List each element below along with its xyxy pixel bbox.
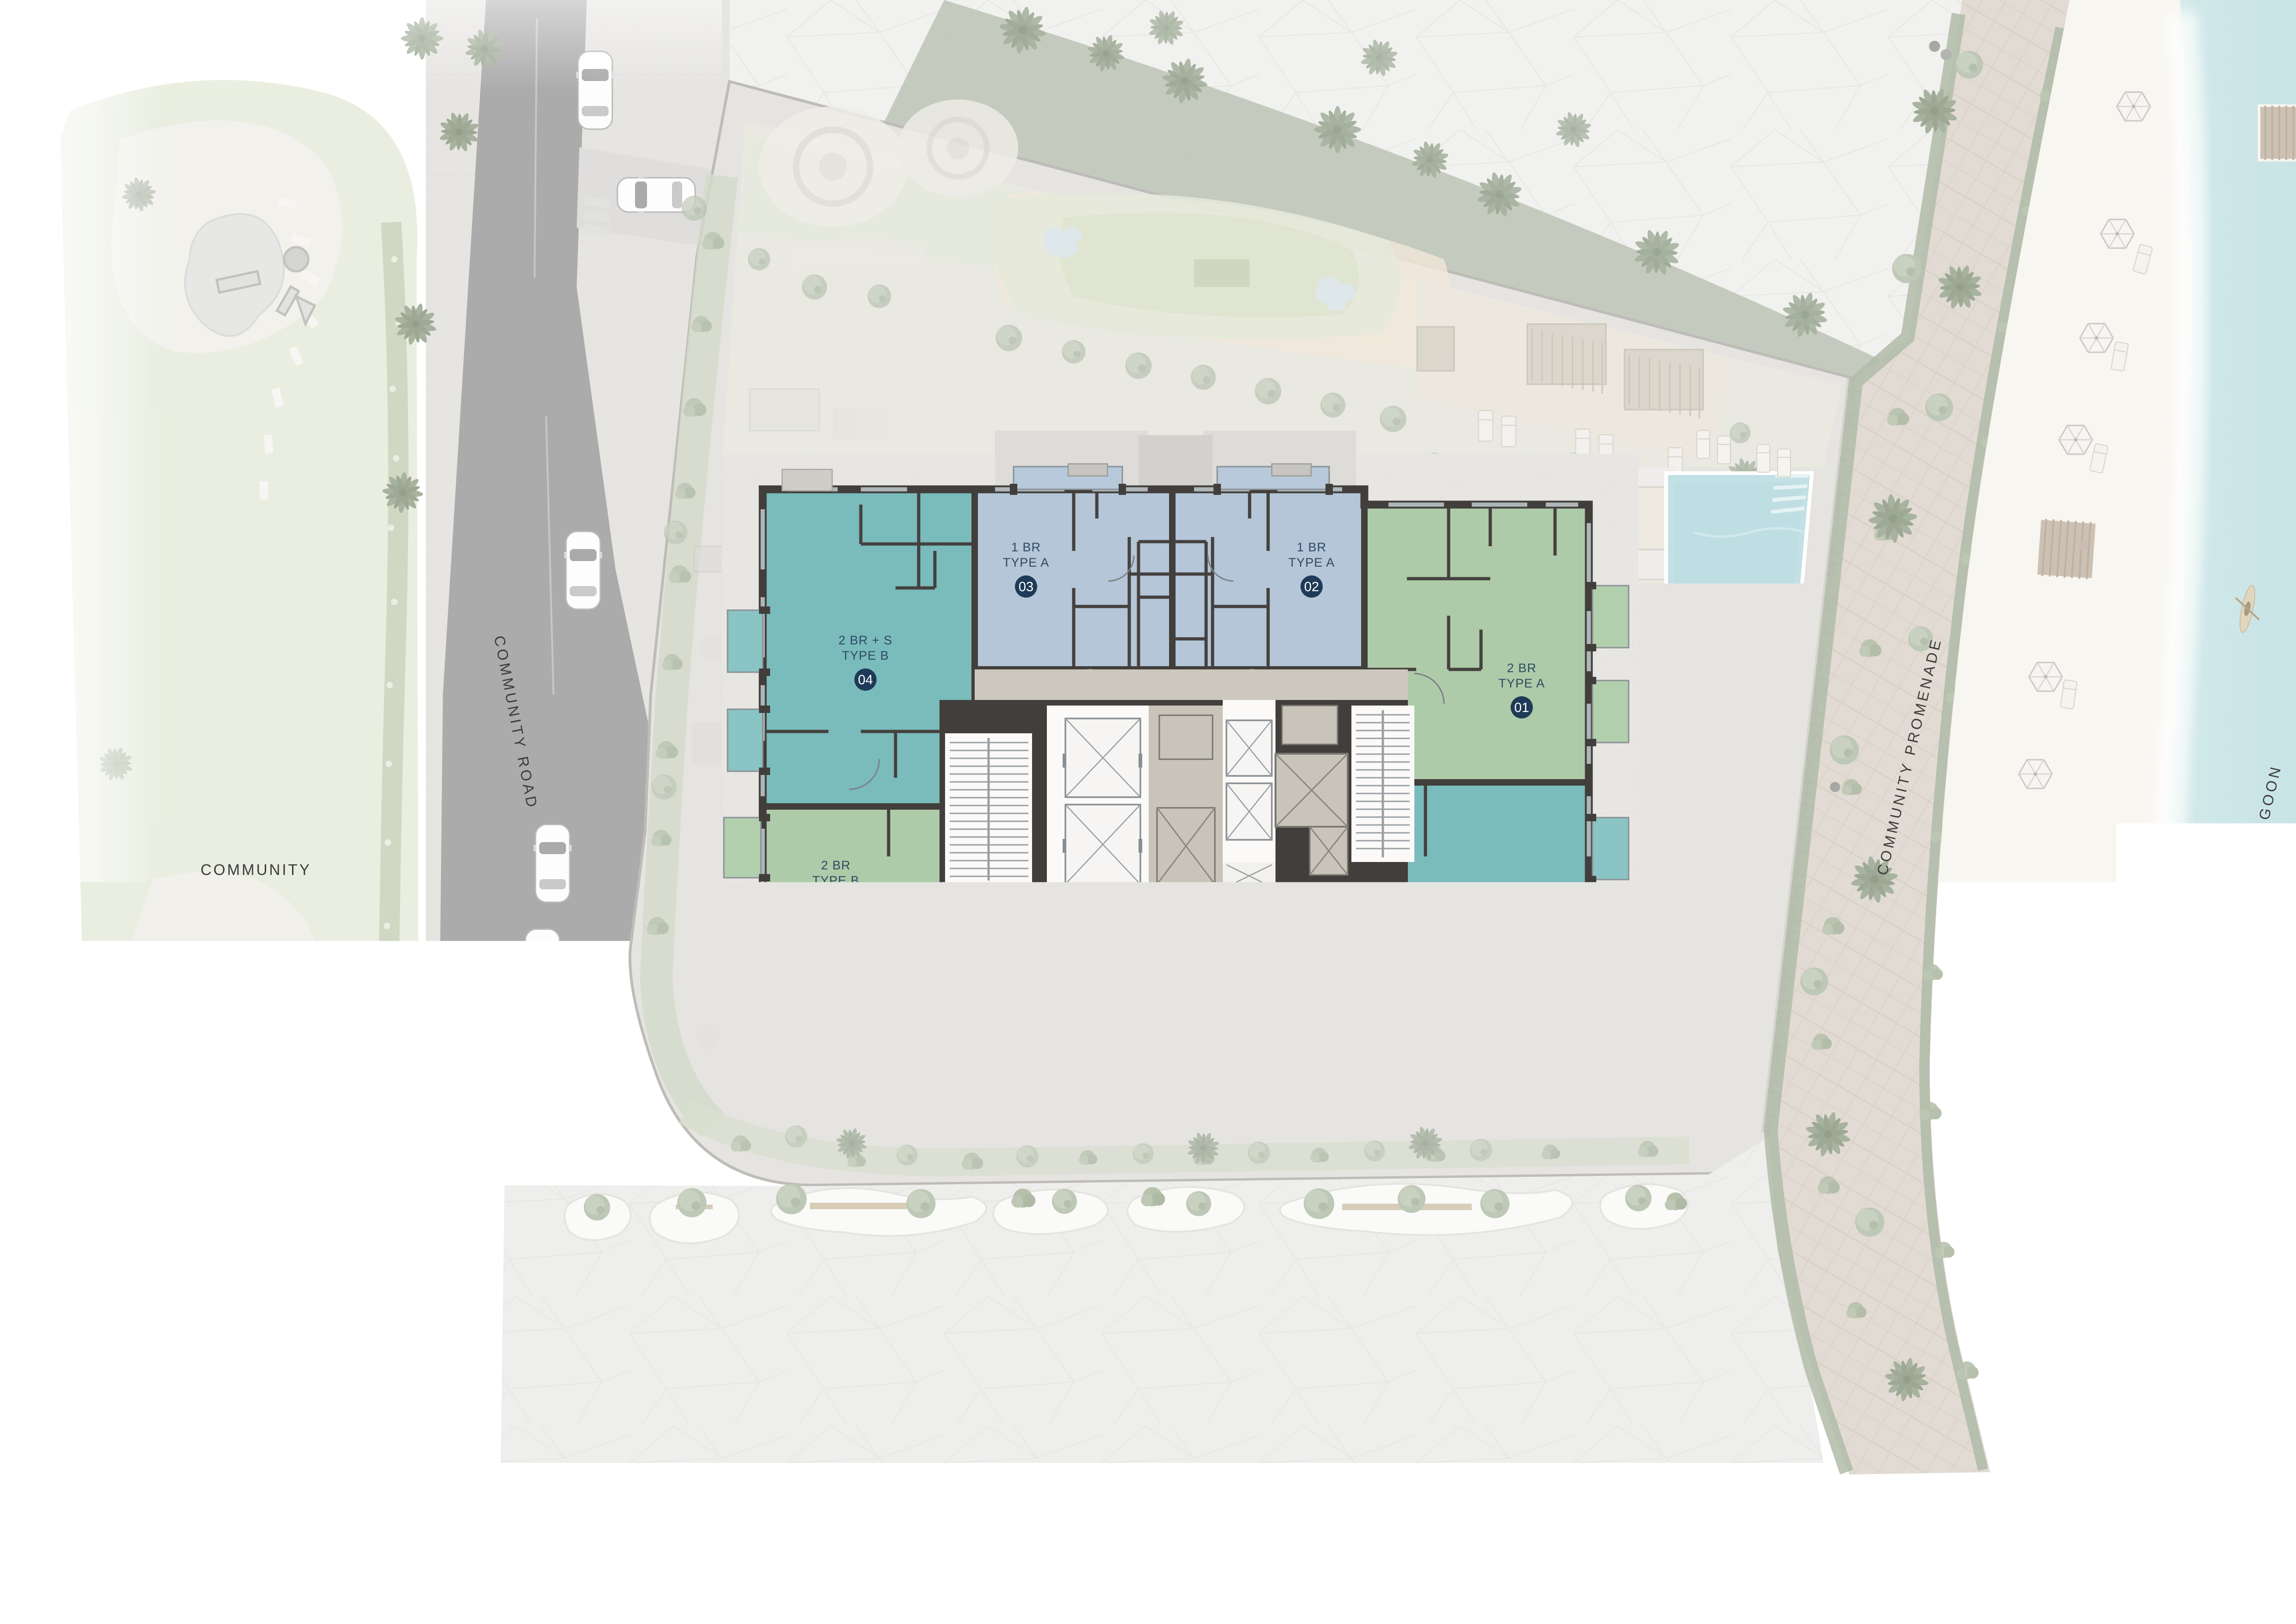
svg-text:TYPE B: TYPE B bbox=[842, 649, 889, 662]
svg-text:1 BR: 1 BR bbox=[1297, 986, 1326, 999]
svg-text:2 BR: 2 BR bbox=[821, 858, 851, 872]
svg-text:TYPE A: TYPE A bbox=[1499, 676, 1545, 690]
svg-text:06: 06 bbox=[1019, 1025, 1034, 1040]
svg-text:08: 08 bbox=[1505, 960, 1520, 974]
svg-text:2 BR: 2 BR bbox=[1507, 661, 1537, 675]
svg-text:TYPE A: TYPE A bbox=[1003, 556, 1050, 569]
svg-text:1 BR: 1 BR bbox=[1297, 540, 1326, 554]
svg-text:1 BR: 1 BR bbox=[1011, 540, 1041, 554]
svg-text:1 BEDROOM: 1 BEDROOM bbox=[818, 1491, 977, 1521]
svg-text:PARK: PARK bbox=[232, 880, 280, 897]
svg-text:TYPE A: TYPE A bbox=[1003, 1001, 1050, 1015]
svg-text:14th - 17th FLOOR TYPICAL PLAN: 14th - 17th FLOOR TYPICAL PLAN bbox=[805, 1395, 1571, 1447]
svg-text:04: 04 bbox=[858, 673, 873, 687]
svg-text:2 BR + S: 2 BR + S bbox=[839, 633, 893, 647]
svg-text:03: 03 bbox=[1019, 580, 1033, 594]
svg-text:TYPE A: TYPE A bbox=[1489, 936, 1536, 949]
svg-text:N: N bbox=[1962, 1429, 1976, 1449]
svg-text:07: 07 bbox=[1304, 1025, 1319, 1040]
svg-text:01: 01 bbox=[1514, 700, 1529, 715]
svg-text:TYPE A: TYPE A bbox=[1288, 1001, 1335, 1015]
svg-text:2 BEDROOM + S: 2 BEDROOM + S bbox=[1439, 1491, 1645, 1521]
svg-text:TYPE A: TYPE A bbox=[1288, 556, 1335, 569]
svg-text:1 BR: 1 BR bbox=[1012, 986, 1041, 999]
svg-text:02: 02 bbox=[1304, 580, 1319, 594]
svg-text:2 BEDROOM: 2 BEDROOM bbox=[1130, 1491, 1288, 1521]
svg-text:TYPE B: TYPE B bbox=[812, 874, 859, 887]
svg-text:05: 05 bbox=[828, 898, 843, 912]
svg-text:COMMUNITY: COMMUNITY bbox=[200, 861, 311, 878]
svg-text:2 BR + S: 2 BR + S bbox=[1486, 920, 1540, 934]
